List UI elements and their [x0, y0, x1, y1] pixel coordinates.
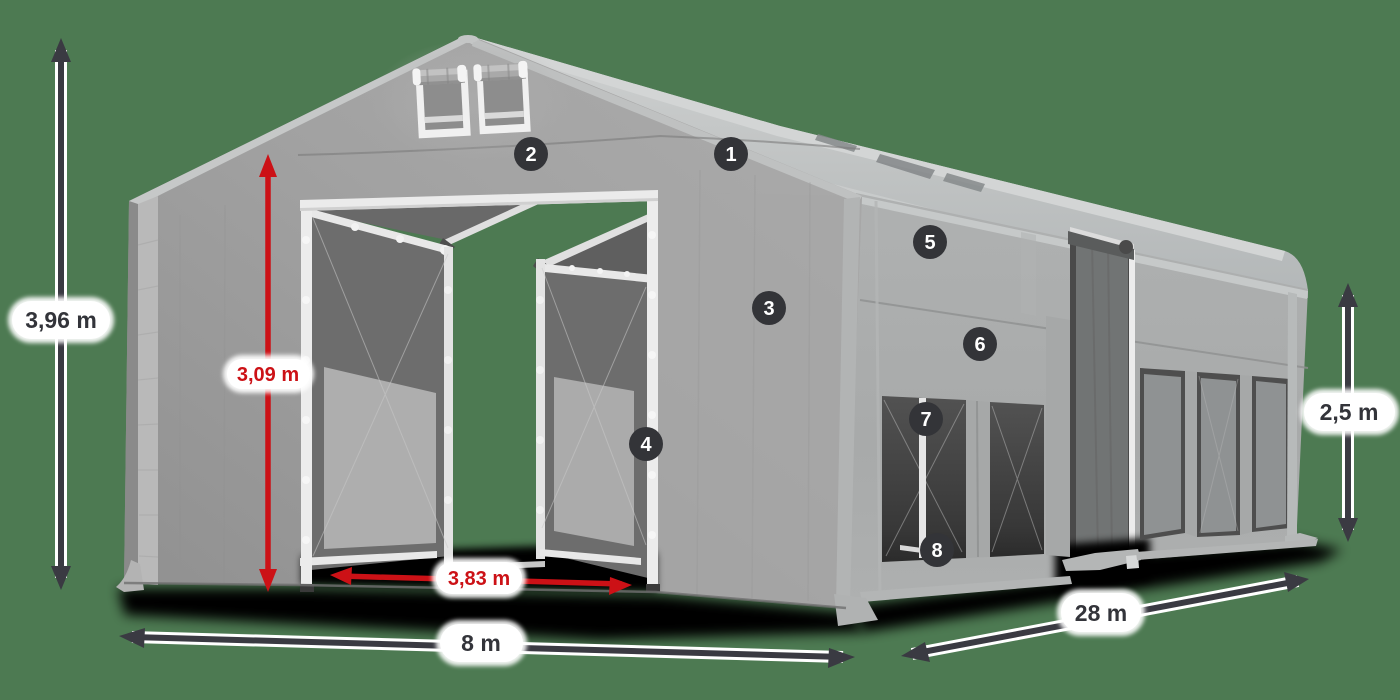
svg-text:1: 1 — [725, 144, 736, 166]
svg-text:3,83 m: 3,83 m — [448, 568, 510, 590]
svg-text:8 m: 8 m — [461, 630, 501, 656]
svg-text:6: 6 — [974, 334, 985, 356]
svg-text:3,96 m: 3,96 m — [25, 307, 97, 333]
svg-text:3,09 m: 3,09 m — [237, 364, 299, 386]
svg-text:4: 4 — [640, 434, 652, 456]
svg-text:2,5 m: 2,5 m — [1320, 399, 1379, 425]
svg-text:2: 2 — [525, 144, 536, 166]
svg-text:8: 8 — [931, 540, 942, 562]
svg-text:3: 3 — [763, 298, 774, 320]
svg-text:7: 7 — [920, 409, 931, 431]
svg-text:5: 5 — [924, 232, 935, 254]
svg-text:28 m: 28 m — [1075, 600, 1127, 626]
